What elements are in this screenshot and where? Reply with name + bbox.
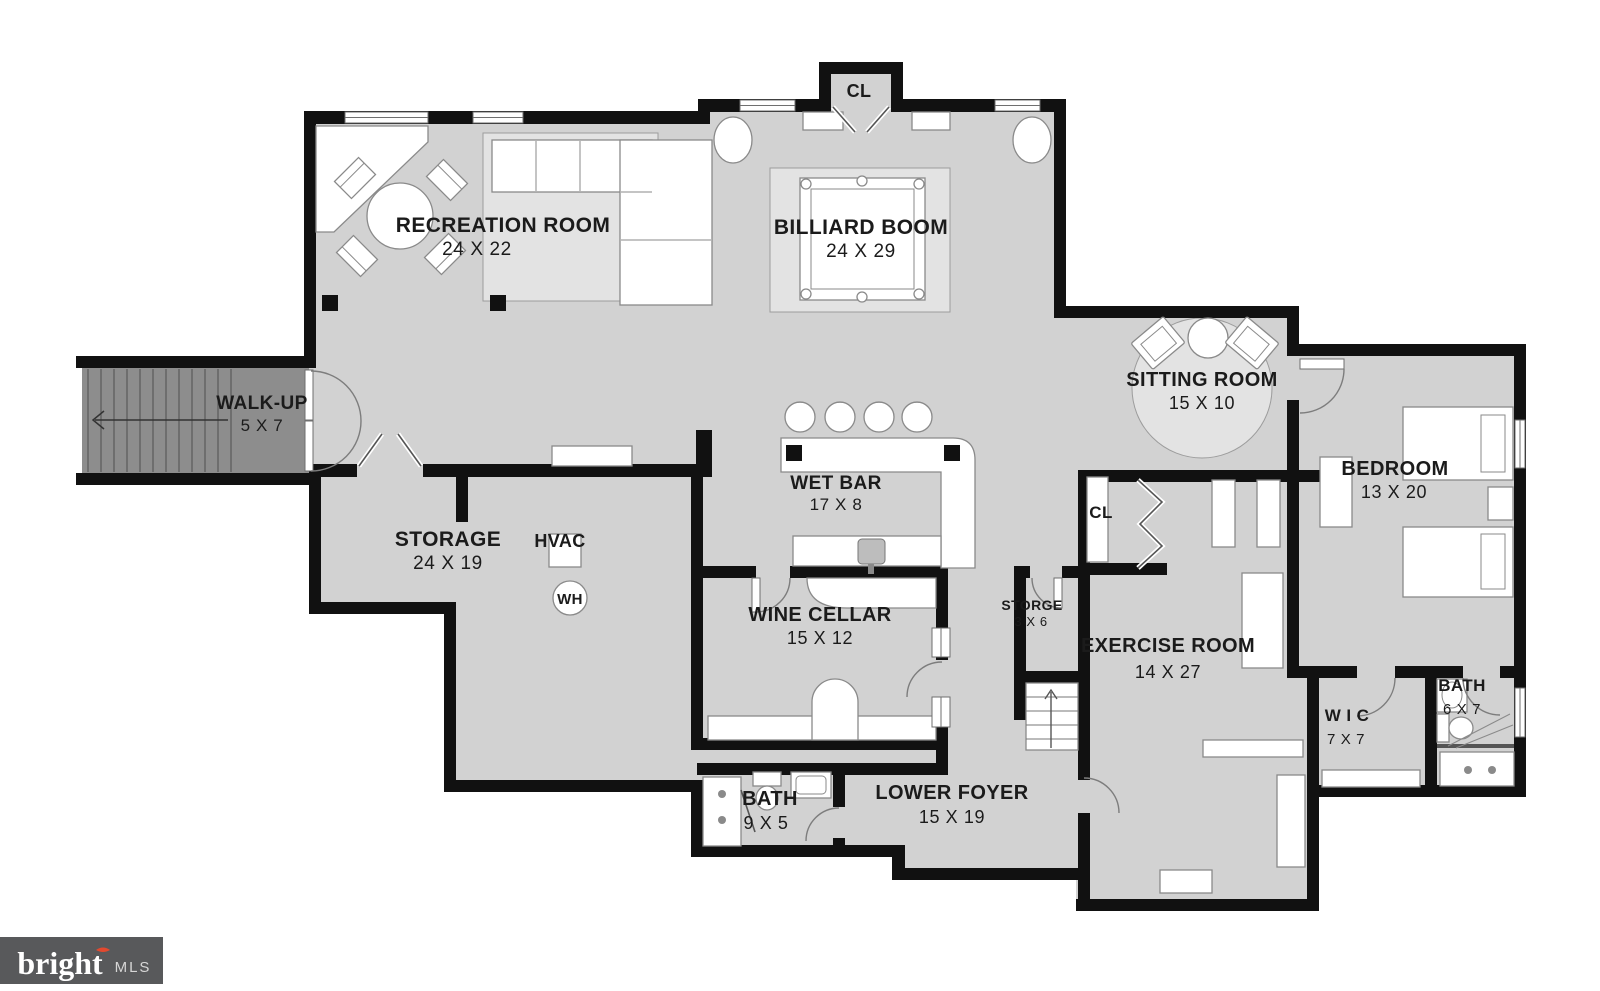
dims-wetbar: 17 X 8 xyxy=(810,495,863,514)
column-post xyxy=(786,445,802,461)
side-table xyxy=(1188,318,1228,358)
dims-recreation: 24 X 22 xyxy=(442,239,512,260)
mat xyxy=(1160,870,1212,893)
wic-shelf xyxy=(1322,770,1420,787)
dims-walkup: 5 X 7 xyxy=(241,416,284,435)
utility-closet xyxy=(1440,752,1514,786)
bar-sink xyxy=(858,539,885,564)
dims-lower-bath: 9 X 5 xyxy=(743,813,788,833)
console-cabinet xyxy=(552,446,632,466)
label-lower-bath: BATH xyxy=(742,788,798,810)
label-walkup: WALK-UP xyxy=(216,393,307,414)
label-bedroom: BEDROOM xyxy=(1341,458,1448,480)
column-post xyxy=(944,445,960,461)
toilet xyxy=(1437,714,1473,742)
dims-storge: 3 X 6 xyxy=(1014,614,1047,629)
window xyxy=(1515,688,1525,737)
dims-winecellar: 15 X 12 xyxy=(787,628,853,648)
floor-plan: WALK-UP 5 X 7 RECREATION ROOM 24 X 22 BI… xyxy=(0,0,1600,991)
lounge-chair xyxy=(1013,117,1051,163)
foyer-stairs xyxy=(1026,683,1078,750)
bright-mls-logo: bright MLS xyxy=(0,937,163,984)
label-storge: STORGE xyxy=(1001,597,1062,613)
dims-sitting: 15 X 10 xyxy=(1169,393,1235,413)
label-wetbar: WET BAR xyxy=(790,473,881,494)
dims-small-bath: 6 X 7 xyxy=(1443,701,1481,718)
treadmill xyxy=(1257,480,1280,547)
column-post xyxy=(490,295,506,311)
dims-wic: 7 X 7 xyxy=(1327,731,1365,748)
label-foyer: LOWER FOYER xyxy=(875,782,1028,804)
weight-bench xyxy=(1203,740,1303,757)
label-hvac: HVAC xyxy=(534,531,585,551)
window xyxy=(740,100,795,111)
tasting-arch xyxy=(812,679,858,740)
dims-storage: 24 X 19 xyxy=(413,553,483,574)
column-post xyxy=(322,295,338,311)
dims-bedroom: 13 X 20 xyxy=(1361,482,1427,502)
exercise-machine xyxy=(1277,775,1305,867)
dims-billiard: 24 X 29 xyxy=(826,241,896,262)
label-exercise: EXERCISE ROOM xyxy=(1081,635,1255,657)
pool-table xyxy=(800,176,925,302)
window xyxy=(995,100,1040,111)
label-storage: STORAGE xyxy=(395,528,501,551)
label-billiard: BILLIARD BOOM xyxy=(774,216,948,239)
label-wic: W I C xyxy=(1325,706,1370,725)
bed xyxy=(1403,527,1513,597)
dims-foyer: 15 X 19 xyxy=(919,807,985,827)
label-sitting: SITTING ROOM xyxy=(1126,369,1277,391)
label-exercise-closet: CL xyxy=(1089,503,1112,522)
logo-suffix: MLS xyxy=(115,959,152,976)
window xyxy=(473,112,523,123)
label-winecellar: WINE CELLAR xyxy=(748,604,891,626)
label-water-heater: WH xyxy=(557,591,583,608)
nightstand xyxy=(1488,487,1513,520)
cabinet xyxy=(912,112,950,130)
label-recreation: RECREATION ROOM xyxy=(396,214,610,237)
label-billiard-closet: CL xyxy=(847,81,872,101)
lounge-chair xyxy=(714,117,752,163)
window xyxy=(1515,420,1525,468)
window xyxy=(345,112,428,123)
dims-exercise: 14 X 27 xyxy=(1135,662,1201,682)
label-small-bath: BATH xyxy=(1438,676,1486,695)
logo-brand: bright xyxy=(17,945,103,981)
treadmill xyxy=(1212,480,1235,547)
